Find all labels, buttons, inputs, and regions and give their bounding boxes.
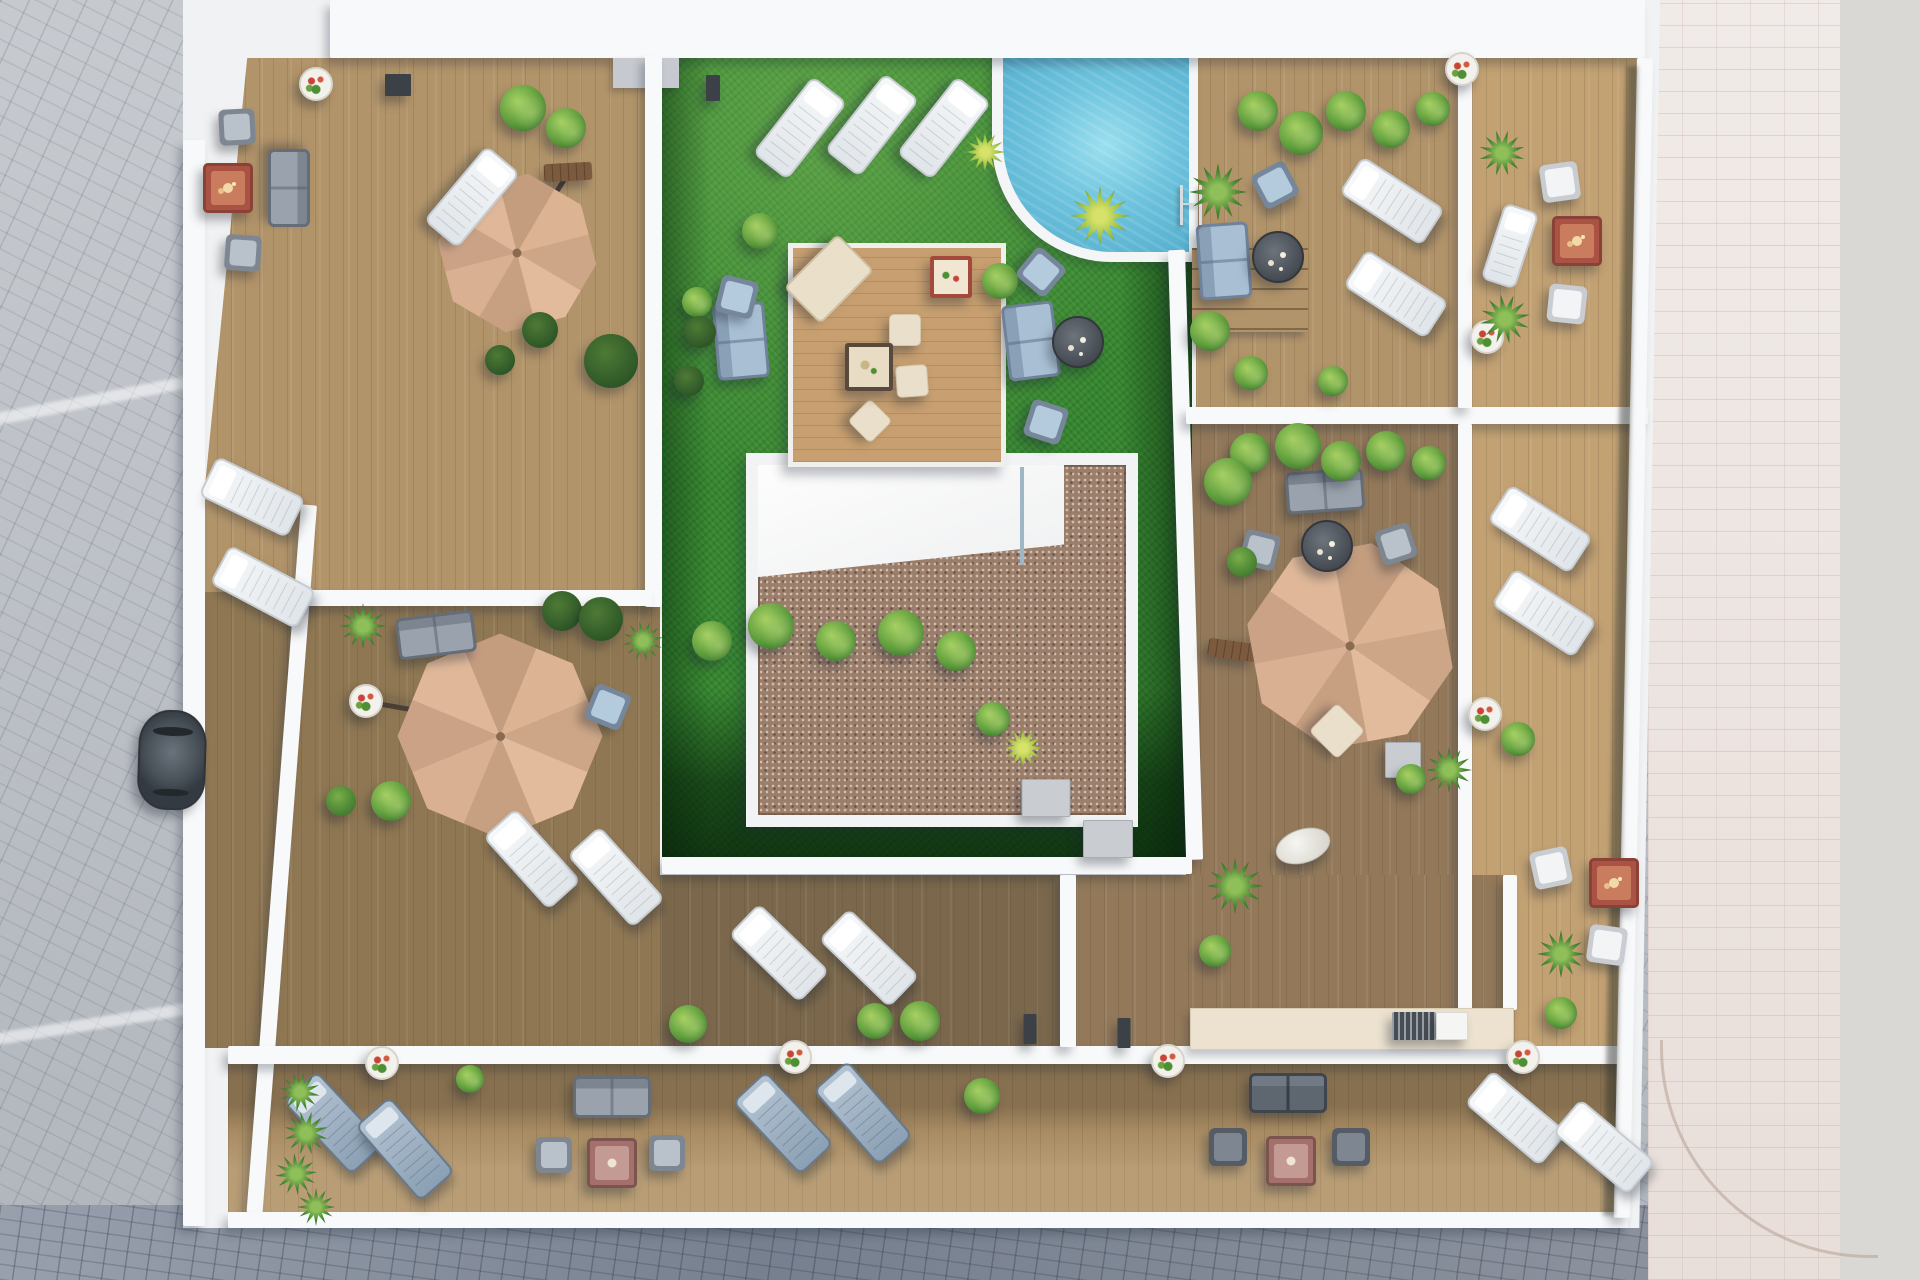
cushion <box>895 364 929 398</box>
bush <box>500 85 546 131</box>
firetable-red <box>1589 858 1639 908</box>
tray-red <box>930 256 972 298</box>
bush <box>371 781 411 821</box>
cushion <box>889 314 921 346</box>
roof-pipe <box>1020 467 1024 565</box>
car <box>136 709 207 811</box>
planter <box>1445 52 1479 86</box>
planter <box>1468 697 1502 731</box>
grill <box>1392 1012 1436 1040</box>
bush <box>1275 423 1321 469</box>
bush <box>1396 764 1426 794</box>
bush-dark <box>674 366 704 396</box>
wall-courtyard-south <box>662 857 1192 874</box>
balcony-south-strip <box>228 1064 1628 1212</box>
gray-box <box>1022 779 1071 817</box>
bush <box>1238 91 1278 131</box>
bush <box>546 108 586 148</box>
armchair-dark <box>1209 1128 1247 1166</box>
bench <box>544 162 593 182</box>
planter <box>1151 1044 1185 1078</box>
bush <box>1412 446 1446 480</box>
armchair <box>224 234 262 272</box>
post <box>385 74 411 96</box>
bush <box>964 1078 1000 1114</box>
firetable-mauve <box>1266 1136 1316 1186</box>
armchair-white <box>1528 845 1573 890</box>
armchair-white <box>1546 283 1588 325</box>
table-round <box>1301 520 1353 572</box>
bush <box>1326 91 1366 131</box>
planter <box>365 1046 399 1080</box>
wall-s-divider <box>1060 875 1076 1047</box>
bush <box>669 1005 707 1043</box>
bush <box>1366 431 1406 471</box>
bush <box>456 1065 484 1093</box>
bush <box>857 1003 893 1039</box>
armchair-white <box>1586 924 1629 967</box>
curb-west <box>183 140 205 1226</box>
bush <box>1321 441 1361 481</box>
bush <box>1318 366 1348 396</box>
bush <box>1199 935 1231 967</box>
curb-south <box>228 1212 1628 1228</box>
bush <box>976 702 1010 736</box>
table-round <box>1252 231 1304 283</box>
planter <box>299 67 333 101</box>
planter <box>1506 1040 1540 1074</box>
bush <box>878 610 924 656</box>
wall-ne-wing <box>1458 58 1472 408</box>
bush-dark <box>684 316 716 348</box>
roof-band-north <box>330 0 1645 58</box>
bush <box>982 263 1018 299</box>
bush-dark <box>522 312 558 348</box>
wall-se <box>1503 875 1517 1010</box>
white-box <box>1436 1012 1468 1040</box>
bush <box>1190 311 1230 351</box>
bush-dark <box>485 345 515 375</box>
bush-dark <box>584 334 638 388</box>
bush <box>1234 356 1268 390</box>
bush-dark <box>542 591 582 631</box>
sofa-dark <box>1249 1073 1327 1113</box>
bush <box>1416 92 1450 126</box>
bush <box>900 1001 940 1041</box>
wall-e-wing <box>1458 424 1472 1050</box>
post <box>706 75 720 101</box>
bush <box>682 287 712 317</box>
umbrella <box>398 634 603 839</box>
topiary <box>1227 547 1257 577</box>
wall-nw-courtyard <box>645 55 662 607</box>
bush <box>1545 997 1577 1029</box>
armchair <box>218 108 256 146</box>
post <box>1024 1014 1037 1044</box>
table-round <box>1052 316 1104 368</box>
armchair <box>536 1137 572 1173</box>
bush <box>742 213 778 249</box>
armchair-white <box>1539 161 1582 204</box>
bush <box>936 631 976 671</box>
tray-dark <box>845 343 893 391</box>
sofa <box>268 149 310 227</box>
bush <box>1372 110 1410 148</box>
bush <box>816 621 856 661</box>
sofa <box>573 1076 651 1118</box>
firetable-red <box>203 163 253 213</box>
firetable-red <box>1552 216 1602 266</box>
post <box>1118 1018 1131 1048</box>
armchair-dark <box>1332 1128 1370 1166</box>
topiary <box>326 786 356 816</box>
bush-dark <box>579 597 623 641</box>
planter <box>778 1040 812 1074</box>
bush <box>748 603 794 649</box>
wall-ne-e-divider <box>1186 407 1648 424</box>
bush <box>1204 458 1252 506</box>
sofa-blue <box>1195 221 1252 300</box>
bush <box>692 621 732 661</box>
bush <box>1279 111 1323 155</box>
armchair <box>649 1135 685 1171</box>
gray-box <box>1083 820 1133 858</box>
planter <box>349 684 383 718</box>
firetable-mauve <box>587 1138 637 1188</box>
rooftop-plan-render: Aerial 3D render of apartment-building r… <box>0 0 1920 1280</box>
bush <box>1501 722 1535 756</box>
